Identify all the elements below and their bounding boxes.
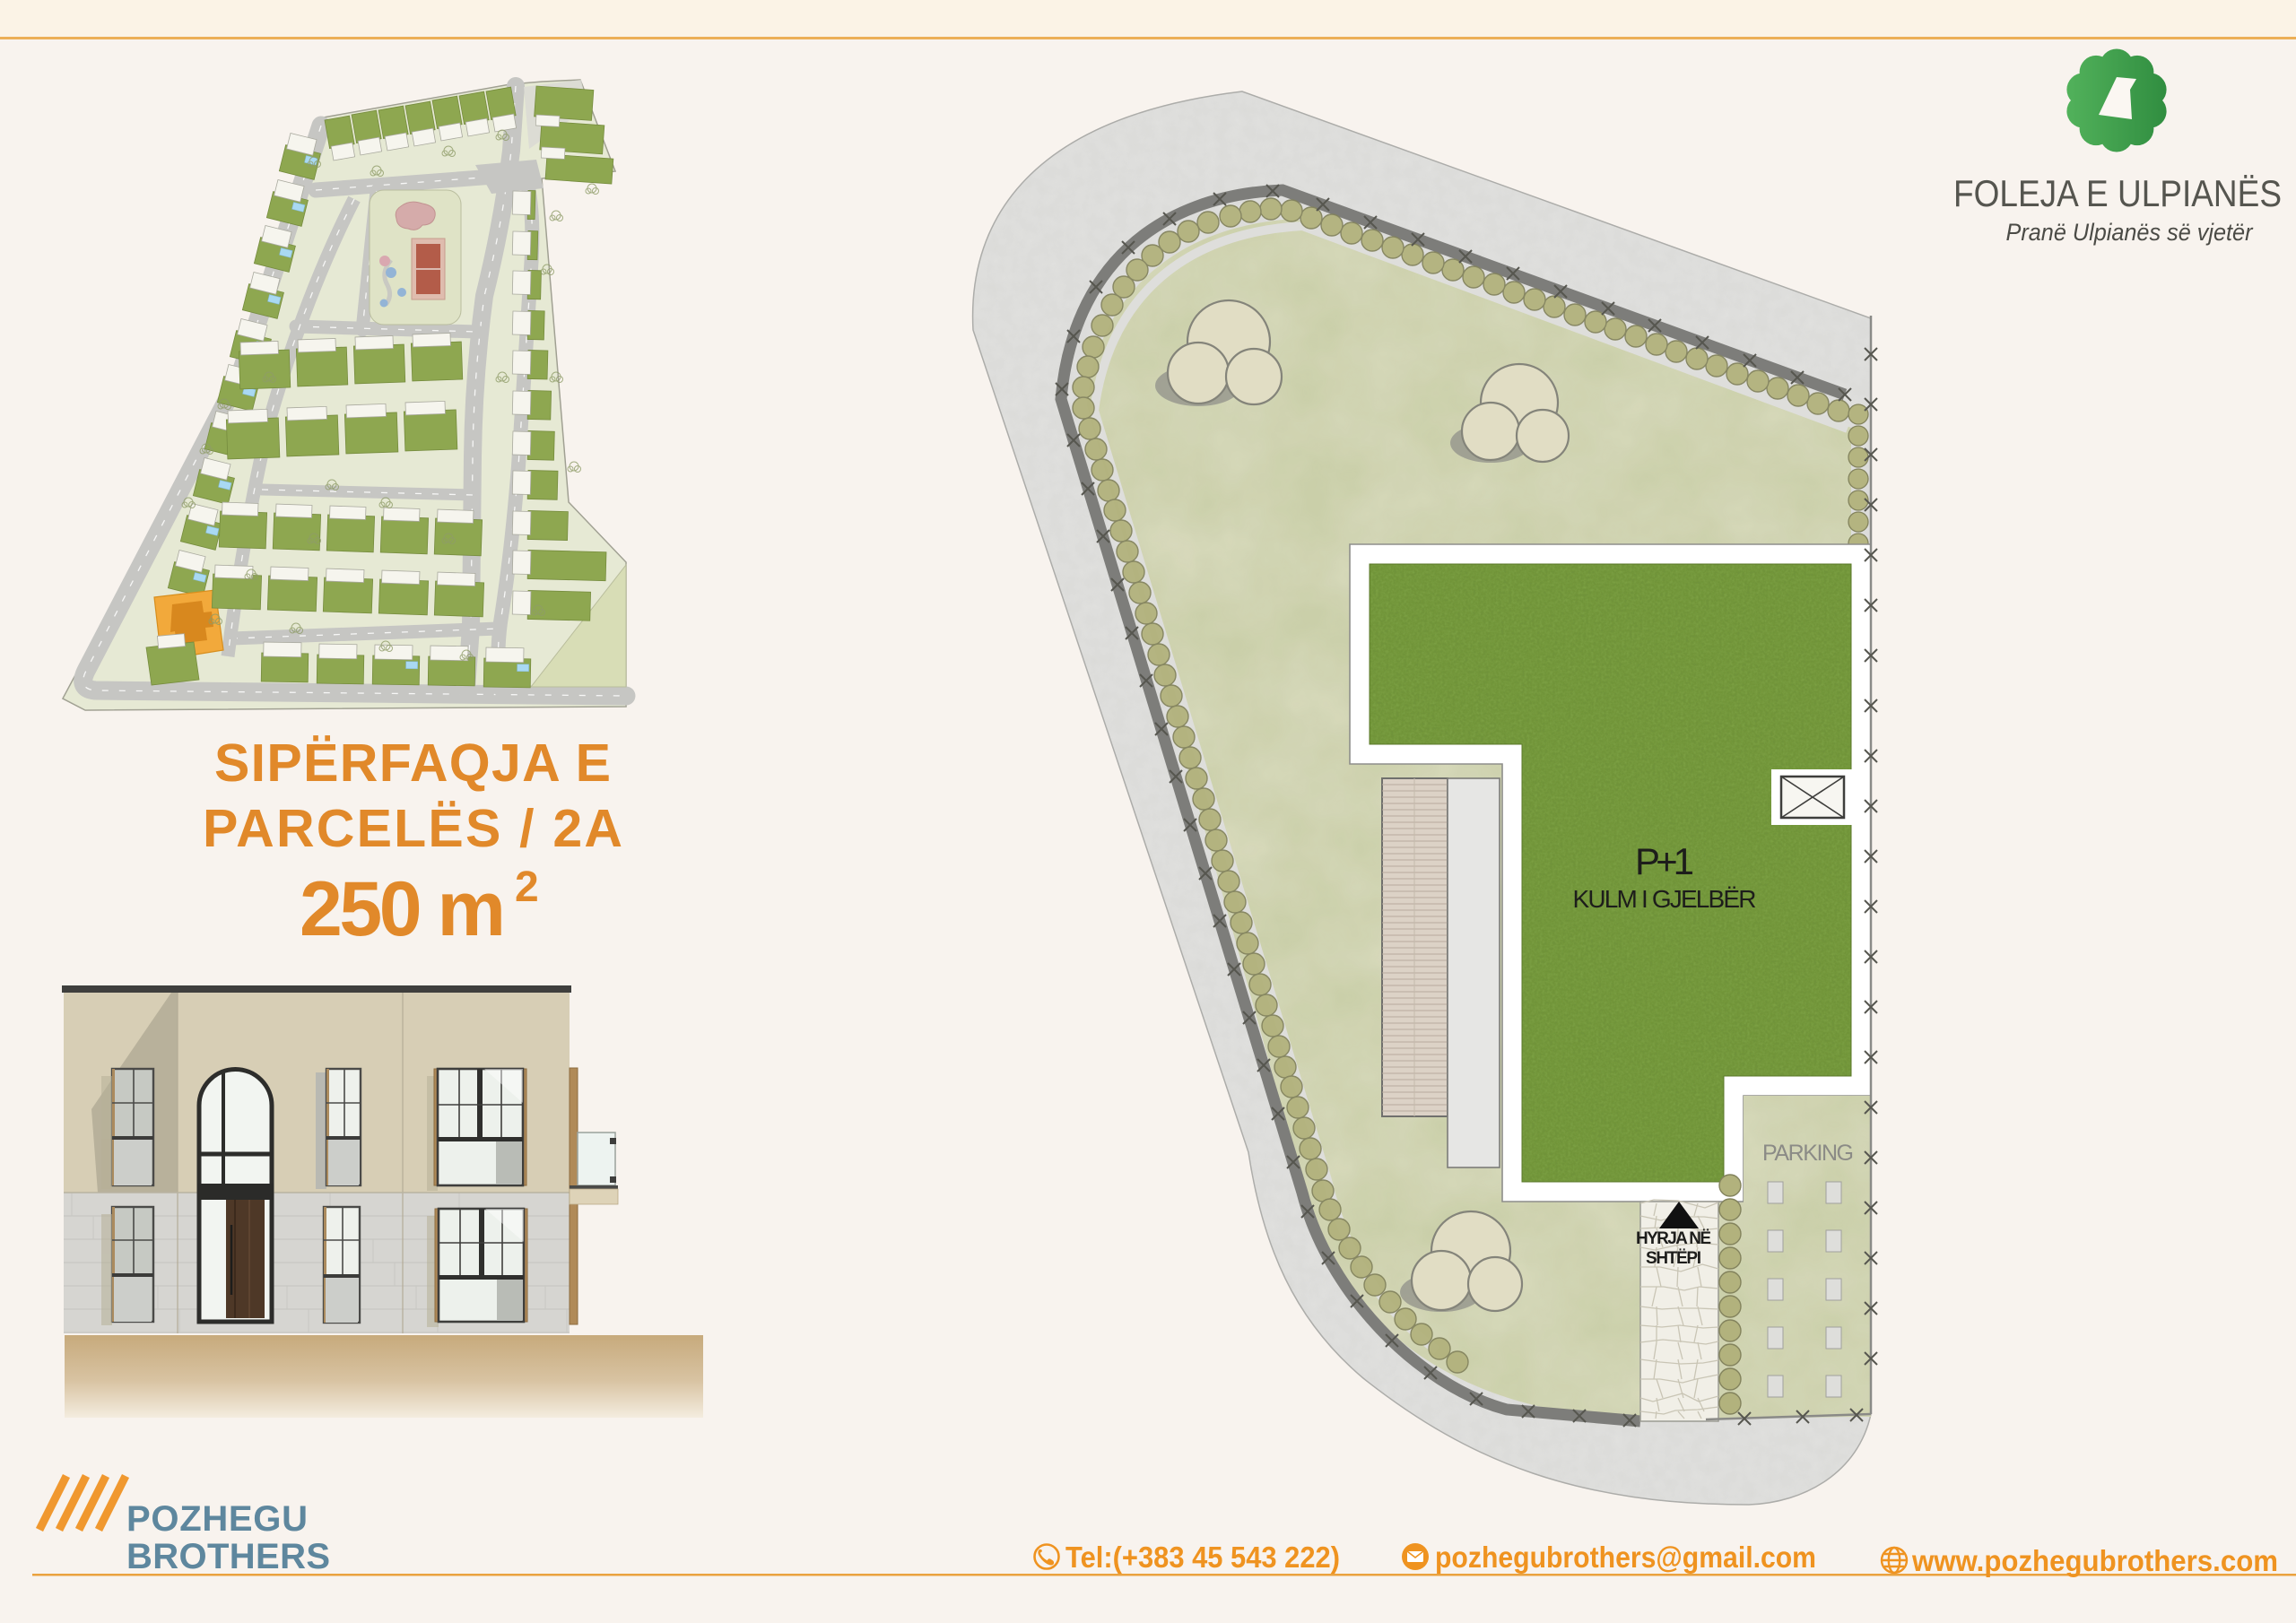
svg-text:SIPËRFAQJA E: SIPËRFAQJA E — [214, 733, 611, 793]
svg-text:www.pozhegubrothers.com: www.pozhegubrothers.com — [1911, 1544, 2278, 1577]
svg-text:FOLEJA E ULPIANËS: FOLEJA E ULPIANËS — [1953, 172, 2282, 214]
svg-text:POZHEGU: POZHEGU — [126, 1499, 308, 1539]
svg-text:HYRJA NË: HYRJA NË — [1636, 1229, 1711, 1248]
svg-text:2: 2 — [515, 864, 539, 911]
svg-text:Pranë Ulpianës së vjetër: Pranë Ulpianës së vjetër — [2006, 219, 2254, 246]
svg-text:pozhegubrothers@gmail.com: pozhegubrothers@gmail.com — [1435, 1541, 1816, 1574]
svg-text:250 m: 250 m — [300, 866, 506, 952]
svg-text:KULM I GJELBËR: KULM I GJELBËR — [1573, 885, 1757, 913]
svg-text:Tel:(+383 45 543 222): Tel:(+383 45 543 222) — [1065, 1541, 1340, 1574]
svg-text:BROTHERS: BROTHERS — [126, 1537, 330, 1576]
svg-text:P+1: P+1 — [1635, 840, 1694, 882]
svg-text:SHTËPI: SHTËPI — [1646, 1249, 1701, 1268]
svg-text:PARCELËS / 2A: PARCELËS / 2A — [203, 799, 622, 858]
svg-text:PARKING: PARKING — [1762, 1141, 1854, 1166]
